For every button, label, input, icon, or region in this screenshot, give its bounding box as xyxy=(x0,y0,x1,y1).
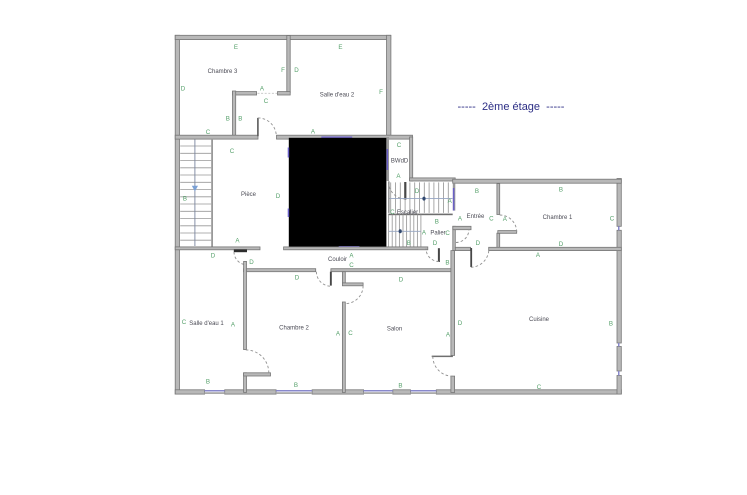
svg-text:F: F xyxy=(281,67,285,74)
svg-text:D: D xyxy=(458,320,463,327)
svg-text:D: D xyxy=(433,240,438,247)
svg-text:Entrée: Entrée xyxy=(467,214,485,220)
svg-text:C: C xyxy=(397,142,402,149)
svg-text:D: D xyxy=(476,240,481,247)
svg-text:C: C xyxy=(264,98,269,105)
svg-text:B: B xyxy=(206,379,210,386)
svg-text:C: C xyxy=(349,262,354,269)
svg-text:Cuisine: Cuisine xyxy=(529,317,550,323)
svg-text:C: C xyxy=(206,129,211,136)
svg-text:B: B xyxy=(407,240,411,247)
svg-text:B: B xyxy=(226,116,230,123)
svg-text:D: D xyxy=(415,188,420,195)
svg-text:E: E xyxy=(234,44,238,51)
svg-text:D: D xyxy=(295,275,300,282)
svg-text:C: C xyxy=(489,216,494,223)
svg-text:Couloir: Couloir xyxy=(328,257,347,263)
svg-text:----- 2ème étage -----: ----- 2ème étage ----- xyxy=(458,101,565,113)
svg-text:B: B xyxy=(238,116,242,123)
svg-text:B: B xyxy=(609,321,613,328)
svg-text:Chambre 2: Chambre 2 xyxy=(279,326,309,332)
svg-text:C: C xyxy=(537,384,542,391)
svg-text:C: C xyxy=(348,330,353,337)
svg-text:B: B xyxy=(559,187,563,194)
svg-text:B: B xyxy=(294,382,298,389)
svg-text:BWdD: BWdD xyxy=(391,158,409,164)
svg-text:D: D xyxy=(399,277,404,284)
svg-text:C: C xyxy=(610,216,615,223)
svg-text:Salle d'eau 2: Salle d'eau 2 xyxy=(320,93,355,99)
svg-text:Pièce: Pièce xyxy=(241,192,257,198)
svg-text:F: F xyxy=(379,89,383,96)
svg-text:C: C xyxy=(230,148,235,155)
svg-text:B: B xyxy=(398,383,402,390)
svg-text:Salle d'eau 1: Salle d'eau 1 xyxy=(189,321,224,327)
svg-text:C: C xyxy=(445,230,450,237)
svg-text:B: B xyxy=(445,260,449,267)
svg-text:D: D xyxy=(249,259,254,266)
svg-text:B: B xyxy=(435,218,439,225)
svg-text:C: C xyxy=(390,209,395,216)
svg-text:D: D xyxy=(181,86,186,93)
svg-text:D: D xyxy=(294,67,299,74)
svg-text:Chambre 1: Chambre 1 xyxy=(543,215,573,221)
svg-text:B: B xyxy=(475,188,479,195)
svg-text:Salon: Salon xyxy=(387,327,402,333)
svg-text:D: D xyxy=(211,252,216,259)
svg-text:E: E xyxy=(338,44,342,51)
svg-text:Chambre 3: Chambre 3 xyxy=(208,69,238,75)
svg-text:Escalier: Escalier xyxy=(397,210,418,216)
svg-text:B: B xyxy=(183,196,187,203)
svg-text:D: D xyxy=(276,193,281,200)
svg-text:C: C xyxy=(182,319,187,326)
svg-text:Palier: Palier xyxy=(430,230,445,236)
